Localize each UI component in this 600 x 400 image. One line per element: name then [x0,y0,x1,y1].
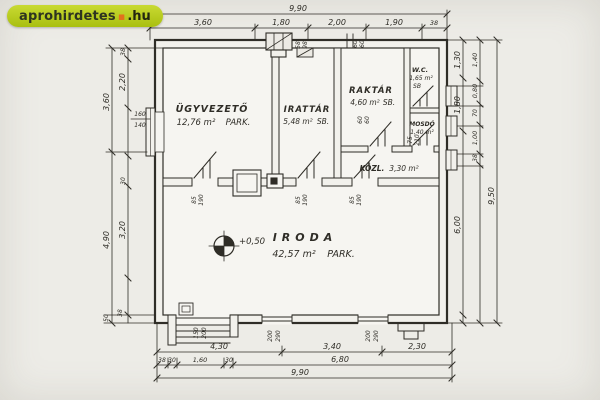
dim-left-bottom1: 38 [117,309,124,317]
dim-right-inner1: 1,30 [453,51,462,69]
room-irattar-note: SB. [317,117,329,126]
corner-step [398,323,424,339]
dim-top-seg2: 1,80 [272,18,290,27]
dim-left-inner2: 2,20 [118,73,127,91]
room-kozl-area: 3,30 m² [389,164,418,173]
dim-right [447,37,502,326]
dim-right-outer4: 1,00 [471,131,479,145]
raktar-vent-b: 60 [364,116,371,124]
watermark-name: aprohirdetes [19,9,116,24]
entrance-w: 150 [193,327,200,339]
chimney-size-b: 98 [302,41,309,49]
door3-h: 190 [356,194,363,206]
room-raktar-note: SB. [383,98,395,107]
dim-right-total: 9,50 [487,187,496,205]
floor-plan-drawing: +0,50 ÜGYVEZETŐ 12,76 m² PARK. IRATTÁR 5… [0,0,600,400]
room-wc-name: W.C. [412,66,428,74]
dim-left-inner4: 30 [120,177,127,185]
room-irattar-area: 5,48 m² [283,117,312,126]
room-iroda-name: IRODA [273,231,338,244]
room-ugyvezeto-name: ÜGYVEZETŐ [176,104,249,115]
chimney-size-a: 58 [295,41,302,49]
dim-left-inner3: 3,20 [118,221,127,239]
dim-left-outer1: 3,60 [102,93,111,111]
door1-w: 85 [191,196,198,204]
room-irattar-name: IRATTÁR [284,103,331,115]
kozl-door-w: 75 [407,136,414,144]
dim-top-total: 9,90 [289,4,307,13]
room-wc-area: 1,65 m² [409,75,433,82]
dim-top-seg5: 38 [430,19,438,27]
room-wc-note: SB [413,83,421,90]
dim-bottom-r1a: 4,30 [210,342,228,351]
room-kozl-name: KÖZL. [360,164,385,173]
room-ugyvezeto-note: PARK. [226,118,251,128]
dim-bottom-r2c: 1,60 [193,356,207,364]
dim-bottom-r2e: 6,80 [331,355,349,364]
dim-right-outer1: 1,40 [471,53,479,67]
dim-top-seg1: 3,60 [194,18,212,27]
dim-top-seg4: 1,90 [385,18,403,27]
window1-w: 200 [267,330,274,342]
scanned-floorplan-page: aprohirdetes ▪ .hu [0,0,600,400]
room-ugyvezeto-area: 12,76 m² [177,118,216,128]
room-iroda-note: PARK. [327,249,355,260]
window1-h: 290 [275,330,282,342]
dim-bottom-r1c: 2,30 [408,342,426,351]
dim-bottom-r2b: 30 [168,357,176,364]
raktar-vent-a: 60 [357,116,364,124]
door3-w: 85 [349,196,356,204]
left-window-w: 160 [134,111,146,118]
dim-right-outer2: 0,80 [471,84,479,98]
dim-right-inner2: 1,80 [453,96,462,114]
room-raktar-name: RAKTÁR [349,84,393,96]
dim-bottom-r2d: 30 [225,357,233,364]
room-iroda-area: 42,57 m² [272,249,315,260]
room-mosdo-name: MOSDÓ [409,121,434,128]
dim-left-bottom2: 50 [103,314,110,322]
window2-h: 290 [373,330,380,342]
dim-bottom-r2a: 38 [158,357,166,364]
dim-bottom-total: 9,90 [291,368,309,377]
door1-h: 190 [198,194,205,206]
dim-top-seg3: 2,00 [328,18,346,27]
left-window [146,108,164,156]
dim-right-outer3: 70 [472,109,479,117]
vent-size-a: 60 [352,40,359,48]
aprohirdetes-watermark-logo[interactable]: aprohirdetes ▪ .hu [7,5,163,27]
dim-left-outer2: 4,90 [102,231,111,249]
elevation-value: +0,50 [239,237,265,247]
dim-right-inner3: 6,00 [453,216,462,234]
vent-size-b: 60 [359,40,366,48]
entrance-h: 200 [201,327,208,339]
watermark-dot-icon: ▪ [118,11,125,22]
left-window-h: 140 [134,122,146,129]
dim-right-outer5: 38 [472,154,479,162]
dim-left-inner1: 38 [119,48,127,56]
dim-top [147,10,450,40]
kozl-door-h: 210 [414,134,421,146]
door2-w: 85 [295,196,302,204]
dim-bottom-r1b: 3,40 [323,342,341,351]
door2-h: 190 [302,194,309,206]
watermark-tld: .hu [127,9,150,24]
room-raktar-area: 4,60 m² [350,98,379,107]
window2-w: 200 [365,330,372,342]
